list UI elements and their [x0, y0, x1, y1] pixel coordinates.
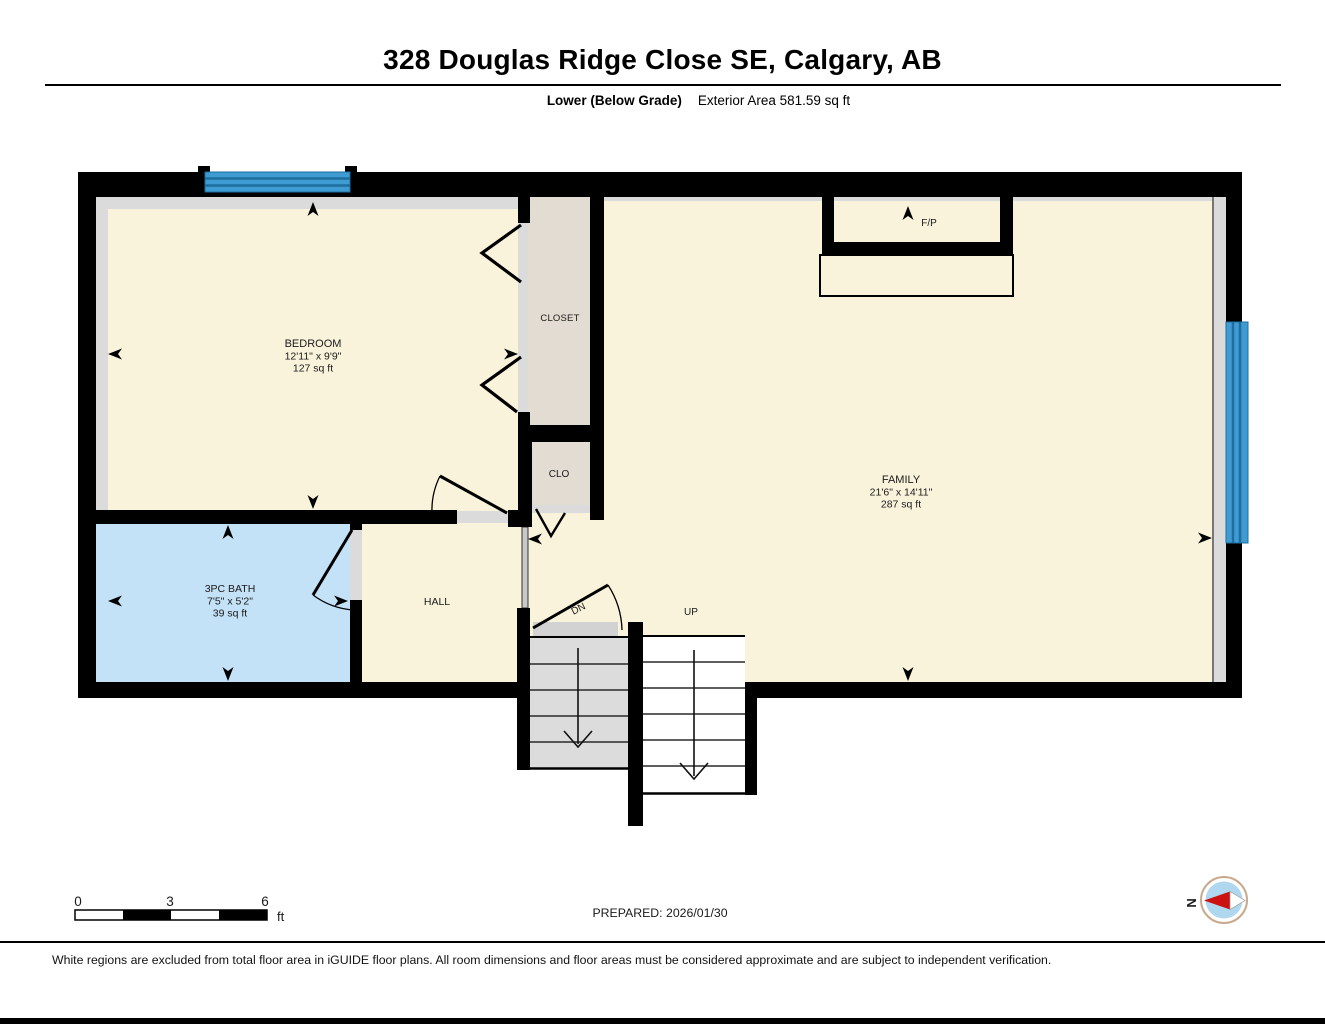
wall-bottom-left: [78, 682, 517, 698]
wall-bedroom-bottom: [93, 510, 457, 524]
wall-closet-post-bottom: [518, 412, 530, 427]
compass-north-label: N: [1184, 898, 1199, 907]
compass: N: [1184, 877, 1247, 923]
scale-tick-0: 0: [74, 894, 82, 909]
floor-plan-page: 328 Douglas Ridge Close SE, Calgary, AB …: [0, 0, 1325, 1024]
wall-clo-right: [590, 437, 604, 520]
wall-bath-right-upper: [350, 524, 362, 530]
family-trim-right-edge: [1212, 197, 1214, 682]
clo-label: CLO: [549, 469, 570, 480]
bath-label: 3PC BATH: [205, 583, 256, 595]
wall-stairs-down-left: [517, 608, 530, 770]
floor-plan-svg: BEDROOM 12'11" x 9'9" 127 sq ft CLOSET C…: [0, 0, 1325, 1024]
wall-fireplace-right: [1000, 197, 1013, 242]
scale-tick-6: 6: [261, 894, 269, 909]
clo-threshold: [530, 505, 590, 513]
family-trim-top: [604, 197, 1212, 201]
wall-bedroom-door-post: [508, 510, 532, 527]
wall-bottom-right: [757, 682, 1242, 698]
fireplace-label: F/P: [921, 218, 937, 229]
closet-room: [528, 197, 590, 425]
family-area: 287 sq ft: [881, 499, 921, 511]
bedroom-window: [205, 172, 350, 192]
family-trim-right: [1212, 197, 1226, 682]
bath-door-threshold: [350, 528, 362, 600]
wall-closet-right: [590, 197, 604, 437]
scale-unit-label: ft: [277, 909, 285, 924]
scale-tick-3: 3: [166, 894, 174, 909]
stairs-down-landing: [533, 622, 618, 637]
wall-closet-post-top: [518, 197, 530, 223]
wall-fireplace-left: [822, 197, 834, 242]
footer-note: White regions are excluded from total fl…: [0, 943, 1325, 967]
bedroom-trim-left: [96, 197, 108, 510]
family-label: FAMILY: [882, 474, 921, 486]
wall-fireplace-bottom: [822, 242, 1013, 255]
bath-area: 39 sq ft: [213, 608, 248, 620]
hall-partition: [522, 527, 528, 608]
fireplace-hearth: [820, 255, 1013, 296]
family-window: [1226, 322, 1248, 543]
stairs-up-label: UP: [684, 607, 698, 618]
wall-left: [78, 172, 96, 698]
stairs-down-treads: [530, 638, 628, 768]
bedroom-area: 127 sq ft: [293, 363, 333, 375]
wall-stairs-up-right: [745, 682, 757, 795]
footer: White regions are excluded from total fl…: [0, 941, 1325, 967]
bath-dims: 7'5" x 5'2": [207, 596, 253, 608]
bedroom-dims: 12'11" x 9'9": [285, 351, 342, 363]
wall-bath-right-lower: [350, 600, 362, 682]
scale-bar: 0 3 6 ft: [74, 894, 284, 924]
prepared-date: PREPARED: 2026/01/30: [592, 906, 727, 920]
bedroom-label: BEDROOM: [285, 338, 342, 350]
bottom-border-bar: [0, 1018, 1325, 1024]
hall-label: HALL: [424, 596, 450, 608]
bedroom-door-threshold: [457, 511, 508, 523]
family-dims: 21'6" x 14'11": [870, 487, 933, 499]
wall-stairs-middle: [628, 622, 643, 826]
closet-label: CLOSET: [540, 313, 579, 324]
